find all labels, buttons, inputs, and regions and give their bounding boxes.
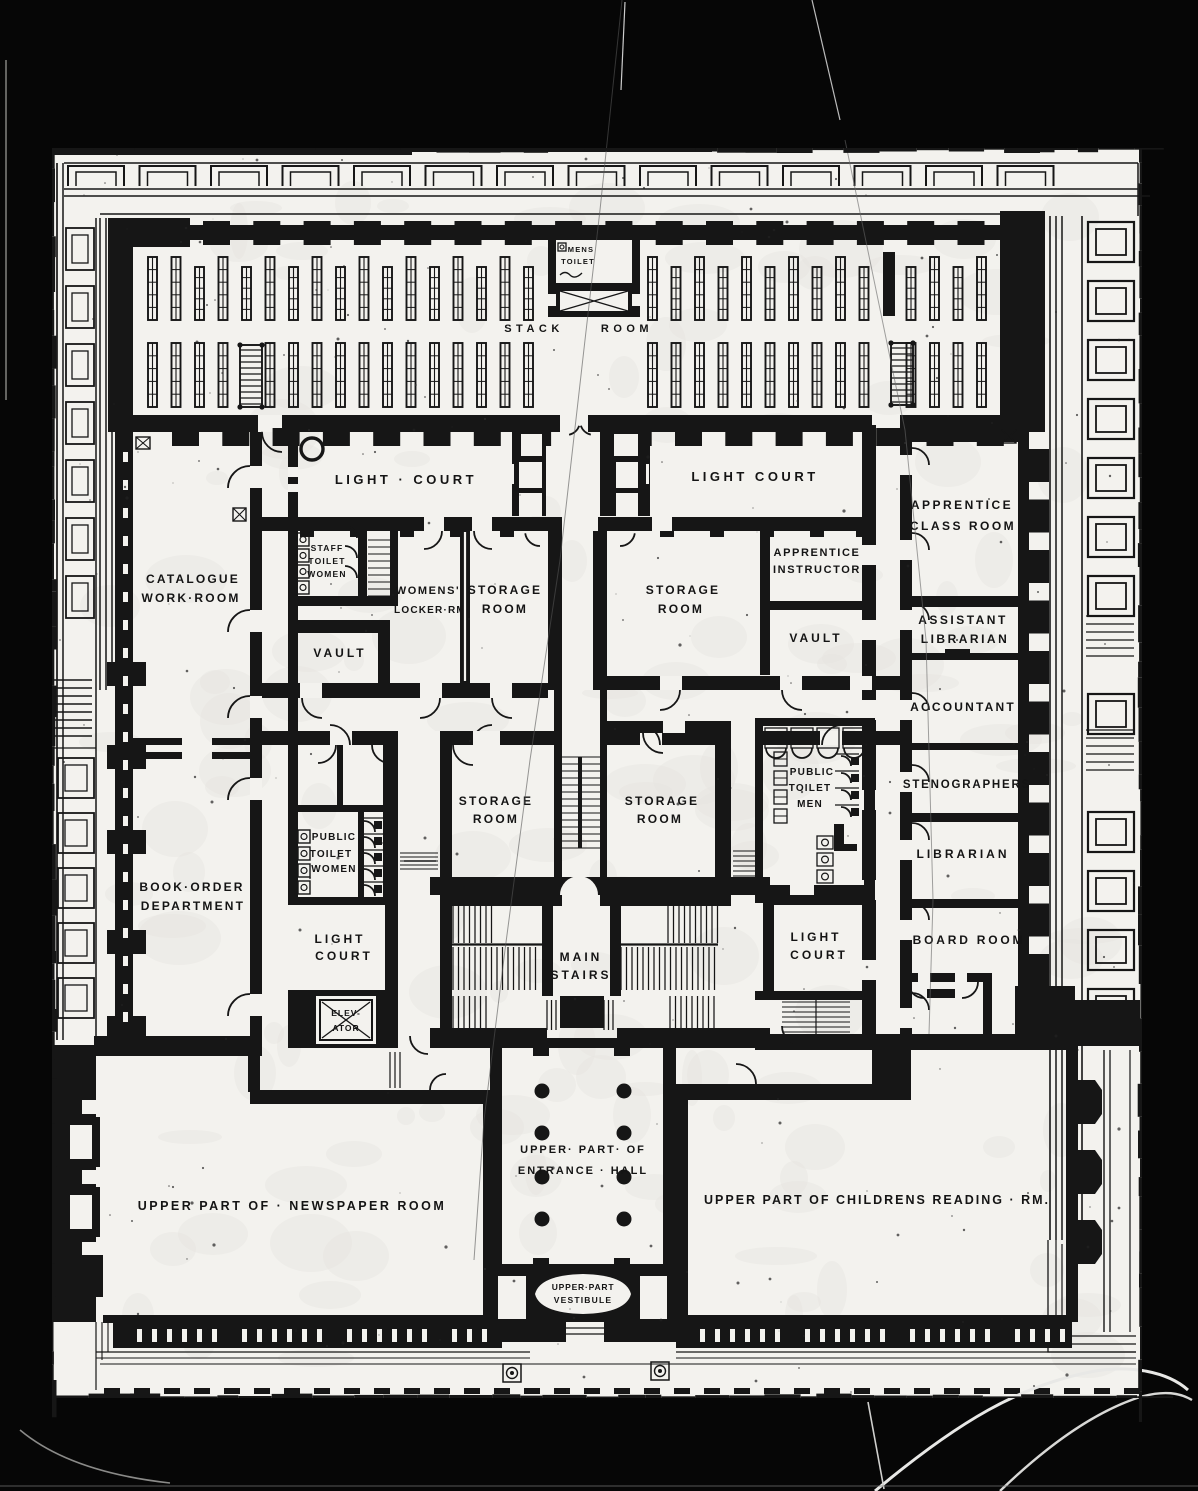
svg-text:WOMEN: WOMEN	[311, 864, 356, 875]
svg-text:ROOM: ROOM	[482, 602, 528, 616]
svg-text:BOARD ROOM: BOARD ROOM	[913, 933, 1026, 947]
svg-text:STENOGRAPHERS: STENOGRAPHERS	[903, 779, 1031, 791]
svg-text:STACK: STACK	[504, 323, 564, 335]
svg-text:LOCKER·RM: LOCKER·RM	[394, 605, 466, 616]
svg-text:ELEV-: ELEV-	[331, 1008, 361, 1018]
svg-text:PUBLIC: PUBLIC	[312, 832, 356, 843]
svg-text:ACCOUNTANT: ACCOUNTANT	[910, 700, 1016, 714]
svg-text:WOMEN: WOMEN	[307, 569, 347, 579]
svg-text:CATALOGUE: CATALOGUE	[146, 572, 240, 586]
svg-text:BOOK·ORDER: BOOK·ORDER	[139, 880, 244, 894]
svg-text:TOILET: TOILET	[310, 849, 353, 860]
svg-text:UPPER PART OF · NEWSPAPER R: UPPER PART OF · NEWSPAPER ROOM	[138, 1199, 447, 1213]
svg-text:ASSISTANT: ASSISTANT	[918, 613, 1008, 627]
svg-text:COURT: COURT	[790, 948, 848, 962]
svg-text:LIBRARIAN: LIBRARIAN	[921, 632, 1010, 646]
svg-text:VAULT: VAULT	[313, 646, 366, 660]
svg-text:UPPER·PART: UPPER·PART	[552, 1282, 615, 1292]
svg-text:STAFF: STAFF	[311, 543, 344, 553]
svg-text:VAULT: VAULT	[789, 631, 842, 645]
svg-text:ATOR: ATOR	[332, 1023, 359, 1033]
svg-text:VESTIBULE: VESTIBULE	[554, 1295, 613, 1305]
svg-text:ROOM: ROOM	[637, 812, 683, 826]
svg-text:LIGHT · COURT: LIGHT · COURT	[335, 472, 477, 487]
svg-text:DEPARTMENT: DEPARTMENT	[141, 899, 245, 913]
svg-text:LIGHT: LIGHT	[791, 930, 842, 944]
svg-text:APPRENTICE: APPRENTICE	[911, 498, 1013, 512]
svg-text:MEN: MEN	[797, 799, 823, 810]
svg-text:STORAGE: STORAGE	[646, 583, 721, 597]
svg-text:WORK·ROOM: WORK·ROOM	[141, 591, 240, 605]
svg-text:ROOM: ROOM	[601, 323, 653, 335]
svg-text:UPPER PART OF CHILDRENS RE: UPPER PART OF CHILDRENS READING · RM.	[704, 1193, 1050, 1207]
svg-text:TOILET: TOILET	[789, 783, 832, 794]
svg-text:WOMENS': WOMENS'	[396, 585, 461, 597]
svg-text:CLASS ROOM: CLASS ROOM	[910, 519, 1016, 533]
svg-text:STORAGE: STORAGE	[459, 794, 534, 808]
svg-text:ENTRANCE · HALL: ENTRANCE · HALL	[518, 1165, 648, 1177]
svg-text:STAIRS: STAIRS	[550, 968, 611, 982]
svg-text:TOILET: TOILET	[561, 257, 595, 266]
svg-text:PUBLIC: PUBLIC	[790, 767, 834, 778]
svg-text:APPRENTICE: APPRENTICE	[774, 547, 861, 559]
svg-text:COURT: COURT	[315, 949, 373, 963]
svg-text:INSTRUCTOR: INSTRUCTOR	[773, 564, 861, 576]
svg-text:MAIN: MAIN	[560, 950, 603, 964]
svg-text:ROOM: ROOM	[473, 812, 519, 826]
svg-text:TOILET: TOILET	[308, 556, 345, 566]
svg-text:MENS: MENS	[568, 245, 594, 254]
svg-text:LIGHT: LIGHT	[315, 932, 366, 946]
svg-text:LIBRARIAN: LIBRARIAN	[917, 847, 1010, 861]
svg-text:ROOM: ROOM	[658, 602, 704, 616]
svg-text:STORAGE: STORAGE	[468, 583, 543, 597]
svg-text:UPPER· PART· OF: UPPER· PART· OF	[520, 1144, 646, 1156]
svg-text:LIGHT COURT: LIGHT COURT	[691, 469, 818, 484]
svg-text:STORAGE: STORAGE	[625, 794, 700, 808]
